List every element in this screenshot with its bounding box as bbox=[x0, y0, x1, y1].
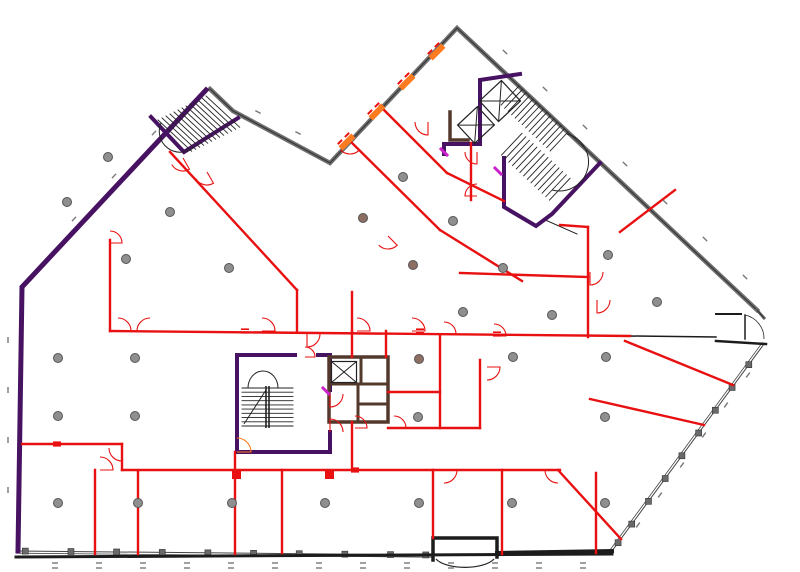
glazing-mullion bbox=[746, 362, 752, 368]
column-dot bbox=[225, 264, 234, 273]
glazing-mullion bbox=[22, 548, 28, 554]
column-dot bbox=[409, 261, 418, 270]
partition-wall-red bbox=[380, 106, 447, 173]
column-dot bbox=[499, 264, 508, 273]
door-arc bbox=[110, 231, 122, 243]
door-arc bbox=[487, 367, 500, 380]
column-dot bbox=[359, 214, 368, 223]
floor-plan-page bbox=[0, 0, 800, 572]
exterior-wall-gray-core bbox=[757, 310, 764, 318]
column-dot bbox=[415, 355, 424, 364]
wall-opening-marker bbox=[232, 471, 241, 479]
dimension-mark bbox=[580, 562, 586, 563]
glazing-mullion bbox=[114, 549, 120, 555]
door-arc bbox=[262, 318, 275, 331]
dimension-mark bbox=[7, 437, 8, 443]
column-dot bbox=[414, 413, 423, 422]
door-arc bbox=[597, 300, 610, 313]
door-arc bbox=[307, 334, 320, 347]
wall-tick bbox=[53, 445, 61, 447]
column-dot bbox=[459, 308, 468, 317]
exterior-walls-layer bbox=[16, 28, 766, 560]
glazing-line bbox=[612, 344, 764, 551]
wall-tick-mark bbox=[241, 328, 249, 333]
dimension-mark bbox=[7, 487, 8, 493]
dimension-mark bbox=[742, 274, 747, 279]
dimension-mark bbox=[360, 567, 366, 568]
dimension-mark bbox=[140, 562, 146, 563]
dimension-mark bbox=[536, 567, 542, 568]
glazing-mullion bbox=[712, 407, 718, 413]
dimension-mark bbox=[622, 161, 627, 166]
door-arc bbox=[415, 122, 428, 135]
column-dot bbox=[602, 353, 611, 362]
partition-wall-red bbox=[625, 341, 733, 385]
dimension-mark bbox=[140, 567, 146, 568]
glazing-mullion bbox=[629, 521, 635, 527]
door-arc bbox=[545, 470, 558, 483]
wall-tick bbox=[351, 467, 359, 469]
exterior-wall-gray-core bbox=[210, 28, 757, 310]
dimension-mark bbox=[580, 567, 586, 568]
glazing-mullion bbox=[159, 549, 165, 555]
column-dot bbox=[228, 499, 237, 508]
stair-handrail bbox=[248, 371, 278, 388]
exterior-wall-dark bbox=[716, 341, 766, 344]
wall-tick bbox=[351, 471, 359, 473]
dimension-mark bbox=[680, 462, 685, 468]
glazing-layer bbox=[17, 343, 764, 558]
glazing-mullion bbox=[696, 430, 702, 436]
door-arc bbox=[100, 457, 113, 470]
dimension-mark bbox=[7, 387, 8, 393]
dimension-mark bbox=[582, 124, 587, 129]
dimension-mark bbox=[255, 110, 261, 114]
dimension-mark bbox=[52, 567, 58, 568]
exterior-wall-dark bbox=[497, 551, 612, 553]
partition-wall-red bbox=[447, 173, 504, 201]
dimension-mark bbox=[702, 236, 707, 241]
dimension-mark bbox=[96, 567, 102, 568]
door-arc bbox=[109, 448, 122, 461]
fire-wall-purple bbox=[444, 74, 520, 154]
dimension-mark bbox=[184, 562, 190, 563]
wall-tick bbox=[241, 328, 249, 330]
dimension-mark bbox=[502, 49, 507, 54]
dimension-mark bbox=[448, 567, 454, 568]
dimension-mark bbox=[316, 567, 322, 568]
partition-wall-red bbox=[460, 273, 588, 277]
partition-wall-red bbox=[560, 225, 588, 227]
door-arc bbox=[305, 347, 315, 357]
column-dot bbox=[104, 153, 113, 162]
elevator-shafts-layer bbox=[332, 81, 521, 383]
wall-tick bbox=[493, 335, 501, 337]
dimension-mark bbox=[724, 402, 729, 408]
dimension-mark bbox=[662, 199, 667, 204]
dimension-mark bbox=[658, 492, 663, 498]
column-dot bbox=[601, 499, 610, 508]
column-dot bbox=[54, 412, 63, 421]
dimension-mark bbox=[448, 562, 454, 563]
dimension-mark bbox=[536, 562, 542, 563]
dimension-mark bbox=[295, 131, 301, 135]
column-dot bbox=[321, 499, 330, 508]
door-arc bbox=[590, 272, 603, 285]
column-dot bbox=[509, 353, 518, 362]
wall-opening-marker bbox=[325, 471, 334, 479]
facade-markers-layer bbox=[53, 41, 501, 472]
partition-wall-red bbox=[110, 331, 630, 336]
dimension-marks-layer bbox=[7, 49, 750, 568]
column-dot bbox=[399, 173, 408, 182]
dimension-mark bbox=[228, 567, 234, 568]
column-dot bbox=[653, 298, 662, 307]
column-dot bbox=[166, 208, 175, 217]
door-arc bbox=[237, 438, 251, 452]
dimension-mark bbox=[71, 216, 76, 221]
accent-magenta-segment bbox=[495, 168, 501, 174]
dimension-mark bbox=[702, 432, 707, 438]
door-arc bbox=[444, 470, 457, 483]
column-dot bbox=[54, 499, 63, 508]
dimension-mark bbox=[316, 562, 322, 563]
glazing-mullion bbox=[662, 476, 668, 482]
accent-magenta-segment bbox=[441, 149, 447, 155]
dimension-mark bbox=[184, 567, 190, 568]
wall-tick bbox=[241, 332, 249, 334]
column-dot bbox=[131, 412, 140, 421]
door-arc bbox=[394, 416, 406, 428]
dimension-mark bbox=[542, 86, 547, 91]
dimension-mark bbox=[96, 562, 102, 563]
column-dot bbox=[131, 354, 140, 363]
columns-layer bbox=[54, 153, 662, 508]
elevator-shaft bbox=[458, 107, 495, 144]
column-dot bbox=[601, 413, 610, 422]
wall-tick bbox=[416, 328, 424, 330]
column-dot bbox=[63, 198, 72, 207]
glazing-mullion bbox=[645, 498, 651, 504]
dimension-mark bbox=[404, 562, 410, 563]
glazing-mullion bbox=[615, 540, 621, 546]
dimension-mark bbox=[746, 372, 751, 378]
floor-plan-canvas bbox=[0, 0, 800, 572]
elevator-shaft-x-icon bbox=[332, 362, 357, 383]
glazing-mullion bbox=[679, 453, 685, 459]
exterior-wall-dark bbox=[433, 538, 497, 560]
glazing-mullion bbox=[68, 549, 74, 555]
door-arc bbox=[444, 322, 456, 334]
dimension-mark bbox=[272, 562, 278, 563]
column-dot bbox=[449, 217, 458, 226]
dimension-mark bbox=[492, 567, 498, 568]
elevator-shaft-x-icon bbox=[458, 107, 495, 144]
elevator-shaft bbox=[332, 362, 357, 383]
dimension-mark bbox=[360, 562, 366, 563]
dimension-mark bbox=[7, 337, 8, 343]
exterior-wall-dark bbox=[630, 336, 716, 337]
partition-wall-red bbox=[558, 470, 621, 539]
door-arc bbox=[330, 394, 343, 407]
dimension-mark bbox=[636, 522, 641, 528]
wall-tick bbox=[416, 332, 424, 334]
door-arc bbox=[357, 318, 370, 331]
dimension-mark bbox=[404, 567, 410, 568]
wall-tick bbox=[53, 441, 61, 443]
wall-tick bbox=[493, 331, 501, 333]
column-dot bbox=[54, 354, 63, 363]
stair-handrail bbox=[745, 315, 764, 339]
column-dot bbox=[548, 311, 557, 320]
exterior-wall-gray bbox=[210, 28, 757, 310]
column-dot bbox=[122, 255, 131, 264]
column-dot bbox=[604, 251, 613, 260]
door-arc bbox=[118, 318, 131, 331]
dimension-mark bbox=[151, 130, 156, 135]
column-dot bbox=[134, 499, 143, 508]
door-arc bbox=[379, 236, 397, 249]
stairs-layer bbox=[158, 86, 764, 567]
column-dot bbox=[415, 499, 424, 508]
doors-layer bbox=[100, 122, 610, 483]
dimension-mark bbox=[228, 562, 234, 563]
stair-handrail bbox=[436, 559, 494, 567]
column-dot bbox=[508, 499, 517, 508]
stair-handrail bbox=[244, 390, 266, 424]
dimension-mark bbox=[52, 562, 58, 563]
dimension-mark bbox=[492, 562, 498, 563]
glazing-line-inner bbox=[610, 343, 762, 550]
dimension-mark bbox=[272, 567, 278, 568]
dimension-mark bbox=[111, 173, 116, 178]
door-arc bbox=[137, 318, 150, 331]
